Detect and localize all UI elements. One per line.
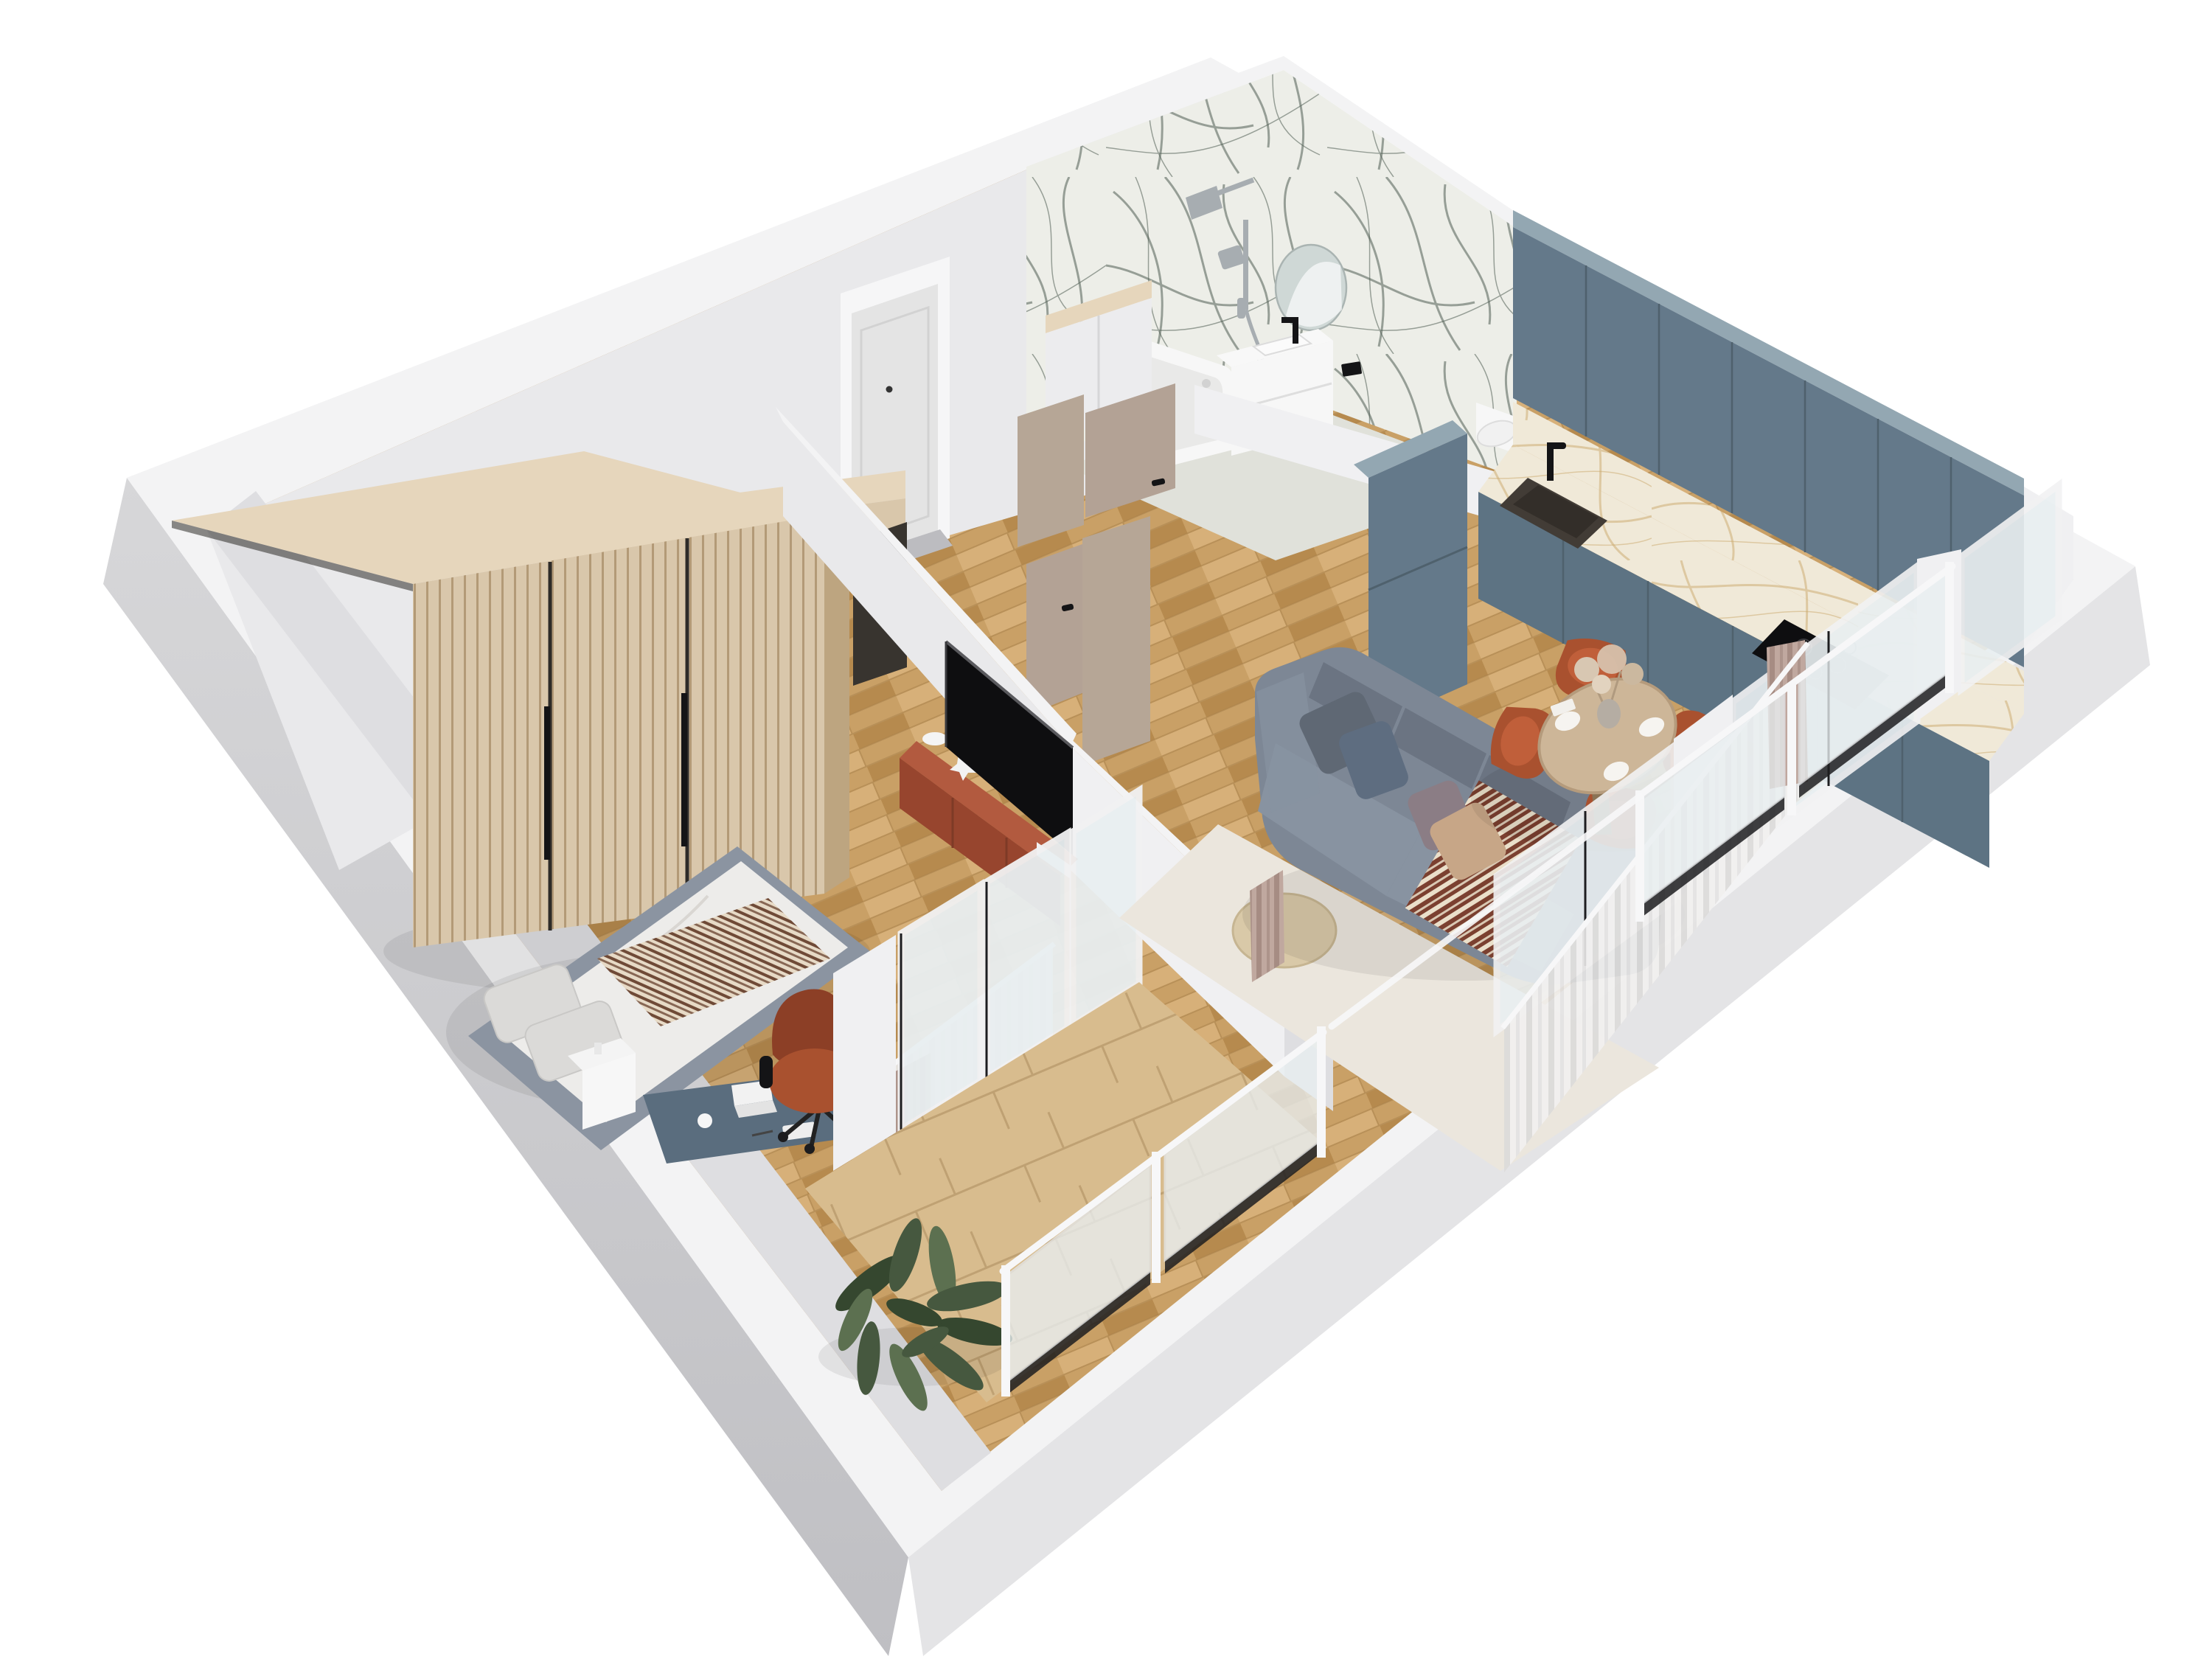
armrest-left xyxy=(759,1056,773,1088)
floorplan-svg xyxy=(0,0,2212,1659)
peephole xyxy=(886,386,893,393)
decor-bowl xyxy=(922,732,947,745)
desk-lamp xyxy=(698,1113,712,1128)
vase xyxy=(1597,699,1621,728)
hall-wall-beige-b xyxy=(1082,516,1150,765)
shower-slide-bar xyxy=(1243,220,1248,310)
hall-wall-beige-a xyxy=(1018,394,1084,547)
hand-shower xyxy=(1237,298,1245,319)
apartment-render xyxy=(0,0,2212,1659)
perfume-bottle xyxy=(594,1043,602,1054)
window-pier xyxy=(833,935,896,1171)
wardrobe-handle-1 xyxy=(544,706,550,860)
wardrobe-handle-2 xyxy=(681,693,687,846)
